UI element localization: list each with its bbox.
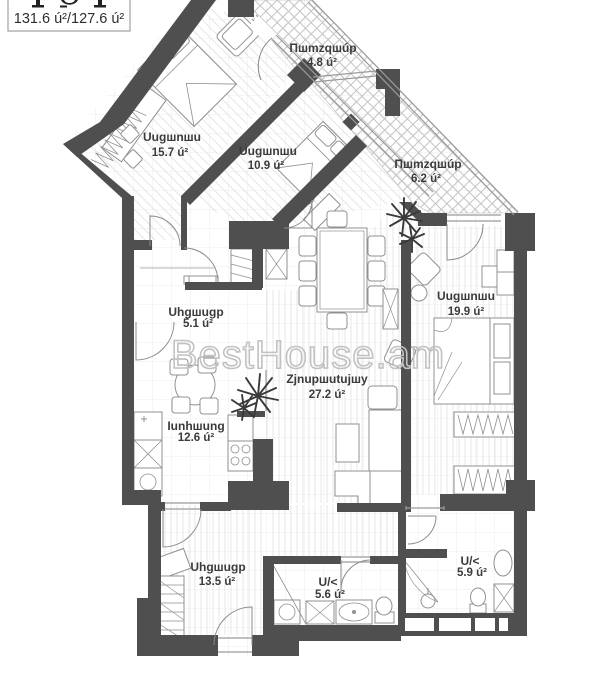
svg-text:13.5 ú²: 13.5 ú² — [199, 576, 236, 588]
svg-text:12.6 ú²: 12.6 ú² — [178, 432, 215, 444]
svg-text:Uugшnшu: Uugшnшu — [143, 130, 201, 144]
svg-text:Uhgшugp: Uhgшugp — [168, 305, 223, 319]
svg-text:5.6 ú²: 5.6 ú² — [315, 589, 345, 601]
svg-text:131.6 ú²/127.6 ú²: 131.6 ú²/127.6 ú² — [14, 11, 125, 27]
svg-text:Пшmzqшúp: Пшmzqшúp — [394, 157, 461, 171]
svg-text:BestHouse.am: BestHouse.am — [171, 333, 445, 377]
svg-text:15.7 ú²: 15.7 ú² — [152, 147, 189, 159]
svg-text:10.9 ú²: 10.9 ú² — [248, 160, 285, 172]
svg-text:Uugшnшu: Uugшnшu — [437, 289, 495, 303]
svg-text:5.1 ú²: 5.1 ú² — [183, 318, 213, 330]
svg-text:U/<: U/< — [460, 554, 479, 568]
svg-text:6.2 ú²: 6.2 ú² — [411, 173, 441, 185]
svg-text:Uhgшugp: Uhgшugp — [190, 560, 245, 574]
svg-text:5.9 ú²: 5.9 ú² — [457, 567, 487, 579]
svg-text:4.8 ú²: 4.8 ú² — [307, 57, 337, 69]
svg-text:Uugшnшu: Uugшnшu — [239, 144, 297, 158]
svg-text:27.2 ú²: 27.2 ú² — [309, 389, 346, 401]
svg-text:Пшmzqшúp: Пшmzqшúp — [289, 41, 356, 55]
svg-text:U/<: U/< — [318, 575, 337, 589]
svg-text:19.9 ú²: 19.9 ú² — [448, 306, 485, 318]
svg-text:Iunhшung: Iunhшung — [167, 419, 224, 433]
